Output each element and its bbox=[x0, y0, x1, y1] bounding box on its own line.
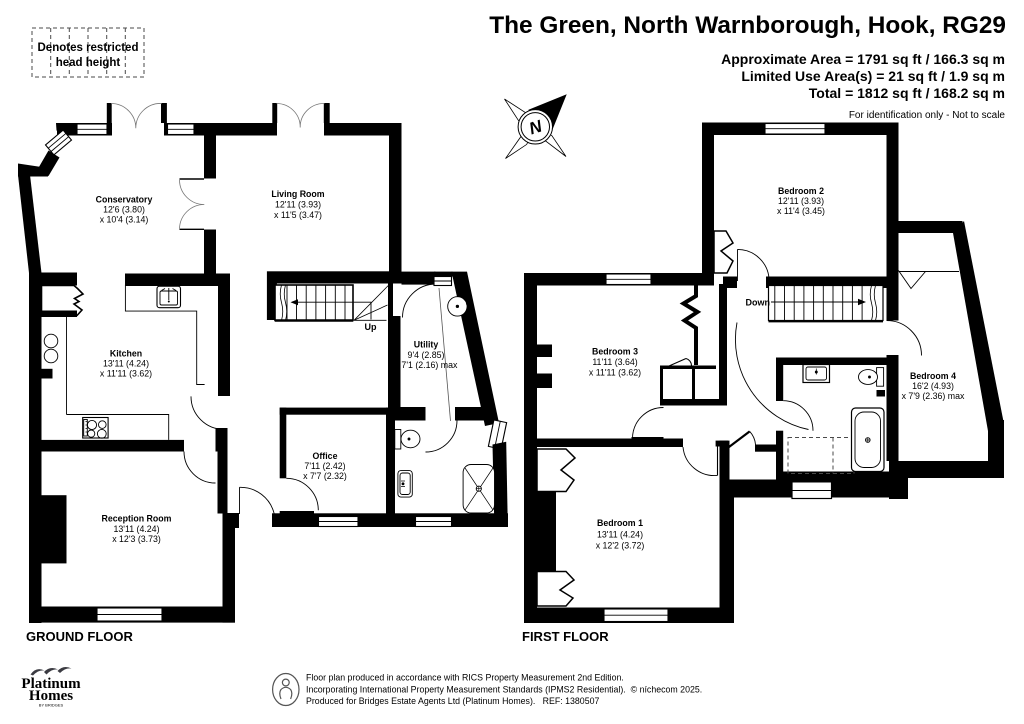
svg-text:FIRST FLOOR: FIRST FLOOR bbox=[522, 629, 609, 644]
svg-text:12'11 (3.93): 12'11 (3.93) bbox=[778, 196, 824, 206]
svg-text:x 7'1 (2.16) max: x 7'1 (2.16) max bbox=[395, 360, 458, 370]
svg-text:x 12'3 (3.73): x 12'3 (3.73) bbox=[112, 534, 161, 544]
svg-text:BY BRIDGES: BY BRIDGES bbox=[39, 703, 64, 708]
svg-text:x 7'7 (2.32): x 7'7 (2.32) bbox=[303, 471, 347, 481]
svg-text:Kitchen: Kitchen bbox=[110, 349, 142, 359]
svg-text:Up: Up bbox=[365, 322, 377, 332]
svg-text:Floor plan produced in accorda: Floor plan produced in accordance with R… bbox=[306, 673, 624, 683]
svg-text:13'11 (4.24): 13'11 (4.24) bbox=[597, 530, 643, 540]
svg-text:Office: Office bbox=[313, 451, 338, 461]
svg-text:x 10'4 (3.14): x 10'4 (3.14) bbox=[100, 215, 149, 225]
svg-text:13'11 (4.24): 13'11 (4.24) bbox=[113, 524, 159, 534]
svg-text:Utility: Utility bbox=[414, 340, 439, 350]
svg-text:x 12'2 (3.72): x 12'2 (3.72) bbox=[596, 541, 645, 551]
svg-text:Approximate Area = 1791 sq ft: Approximate Area = 1791 sq ft / 166.3 sq… bbox=[721, 51, 1005, 67]
svg-text:x 11'5 (3.47): x 11'5 (3.47) bbox=[274, 210, 322, 220]
svg-text:Denotes restricted: Denotes restricted bbox=[38, 42, 139, 54]
svg-text:Down: Down bbox=[746, 298, 771, 308]
svg-text:Reception Room: Reception Room bbox=[102, 514, 172, 524]
svg-text:11'11 (3.64): 11'11 (3.64) bbox=[592, 357, 637, 367]
svg-text:16'2 (4.93): 16'2 (4.93) bbox=[912, 381, 954, 391]
svg-text:x 7'9 (2.36) max: x 7'9 (2.36) max bbox=[902, 391, 965, 401]
svg-text:Bedroom 4: Bedroom 4 bbox=[910, 371, 956, 381]
svg-text:x 11'4 (3.45): x 11'4 (3.45) bbox=[777, 206, 825, 216]
svg-text:Total = 1812 sq ft / 168.2 sq: Total = 1812 sq ft / 168.2 sq m bbox=[809, 85, 1005, 101]
svg-text:7'11 (2.42): 7'11 (2.42) bbox=[304, 461, 345, 471]
svg-text:13'11 (4.24): 13'11 (4.24) bbox=[103, 359, 149, 369]
svg-text:The Green, North Warnborough,: The Green, North Warnborough, Hook, RG29 bbox=[489, 12, 1006, 39]
svg-text:GROUND FLOOR: GROUND FLOOR bbox=[26, 629, 133, 644]
svg-text:head height: head height bbox=[56, 57, 121, 69]
svg-text:9'4 (2.85): 9'4 (2.85) bbox=[408, 350, 445, 360]
svg-text:Incorporating International Pr: Incorporating International Property Mea… bbox=[306, 684, 702, 694]
svg-text:12'6 (3.80): 12'6 (3.80) bbox=[103, 205, 145, 215]
svg-text:Living Room: Living Room bbox=[271, 189, 324, 199]
svg-text:Bedroom 1: Bedroom 1 bbox=[597, 518, 643, 528]
svg-text:Bedroom 3: Bedroom 3 bbox=[592, 347, 638, 357]
svg-text:For identification only - Not: For identification only - Not to scale bbox=[849, 110, 1006, 121]
svg-text:Limited Use Area(s) = 21 sq ft: Limited Use Area(s) = 21 sq ft / 1.9 sq … bbox=[741, 68, 1005, 84]
svg-text:12'11 (3.93): 12'11 (3.93) bbox=[275, 200, 321, 210]
svg-text:x 11'11 (3.62): x 11'11 (3.62) bbox=[589, 368, 641, 378]
svg-text:x 11'11 (3.62): x 11'11 (3.62) bbox=[100, 369, 152, 379]
svg-text:Conservatory: Conservatory bbox=[96, 195, 153, 205]
svg-text:Bedroom 2: Bedroom 2 bbox=[778, 186, 824, 196]
svg-text:Produced for Bridges Estate Ag: Produced for Bridges Estate Agents Ltd (… bbox=[306, 696, 599, 706]
